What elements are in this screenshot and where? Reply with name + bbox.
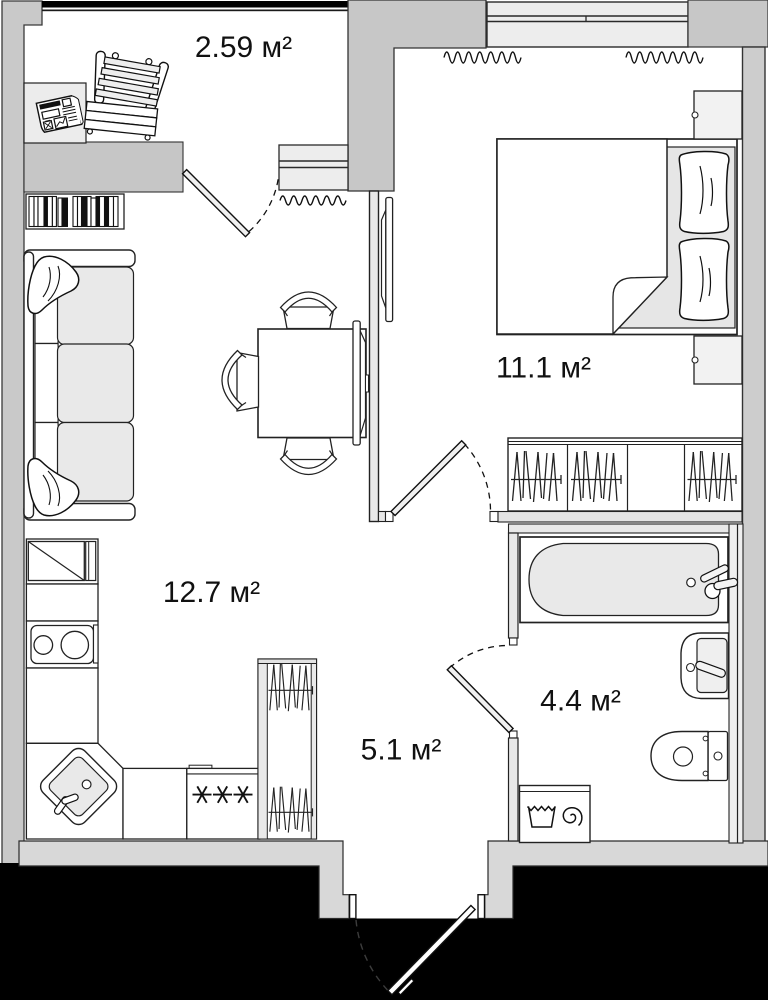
svg-text:2.59 м²: 2.59 м² — [195, 31, 292, 64]
svg-text:11.1 м²: 11.1 м² — [496, 352, 591, 385]
svg-text:4.4 м²: 4.4 м² — [540, 685, 621, 718]
svg-text:5.1 м²: 5.1 м² — [361, 734, 442, 767]
svg-text:12.7 м²: 12.7 м² — [163, 576, 260, 609]
